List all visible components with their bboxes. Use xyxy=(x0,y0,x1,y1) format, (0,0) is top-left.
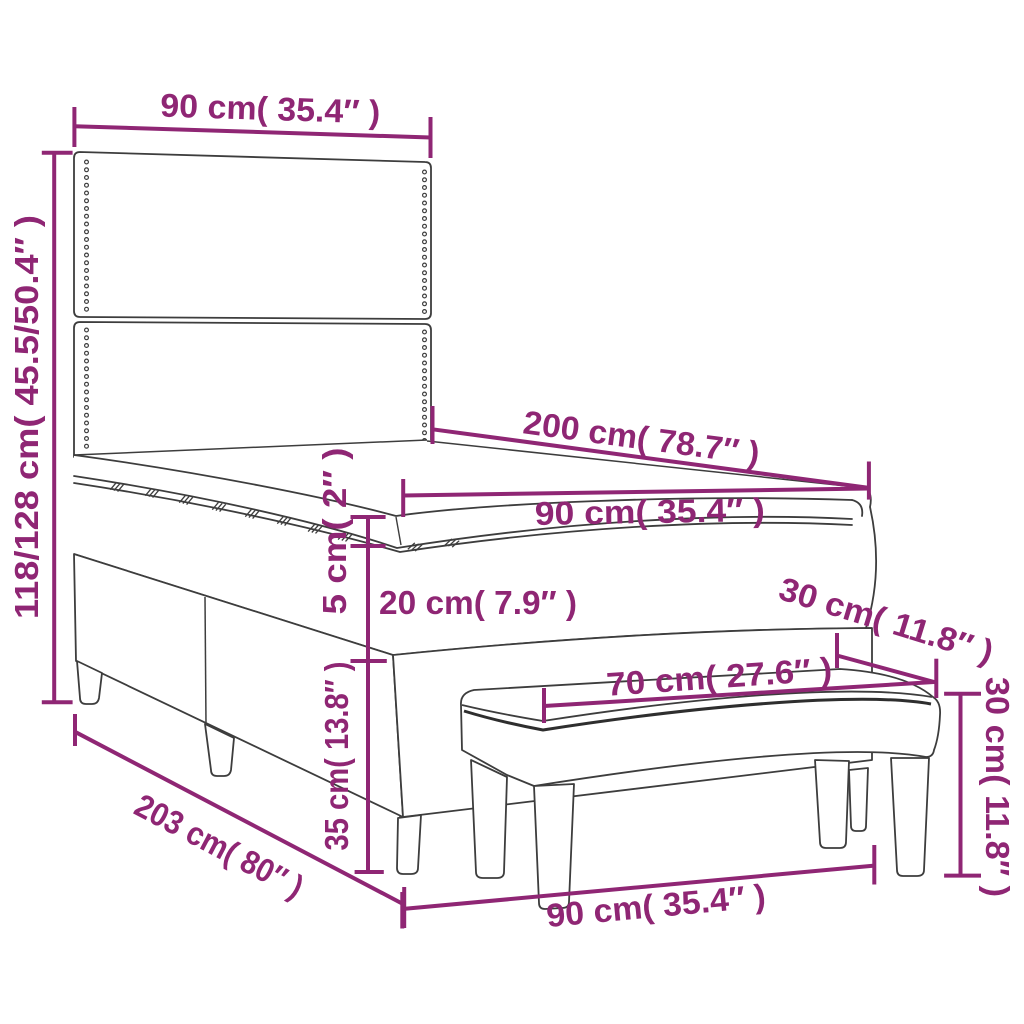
svg-text:90 cm( 35.4″ ): 90 cm( 35.4″ ) xyxy=(534,491,765,532)
svg-text:20 cm( 7.9″ ): 20 cm( 7.9″ ) xyxy=(379,584,577,621)
svg-text:5 cm( 2″ ): 5 cm( 2″ ) xyxy=(316,448,353,615)
svg-text:30 cm( 11.8″ ): 30 cm( 11.8″ ) xyxy=(979,677,1016,897)
svg-text:90 cm( 35.4″ ): 90 cm( 35.4″ ) xyxy=(160,87,381,131)
svg-text:35 cm( 13.8″ ): 35 cm( 13.8″ ) xyxy=(318,662,355,851)
svg-text:118/128 cm( 45.5/50.4″ ): 118/128 cm( 45.5/50.4″ ) xyxy=(8,215,45,619)
